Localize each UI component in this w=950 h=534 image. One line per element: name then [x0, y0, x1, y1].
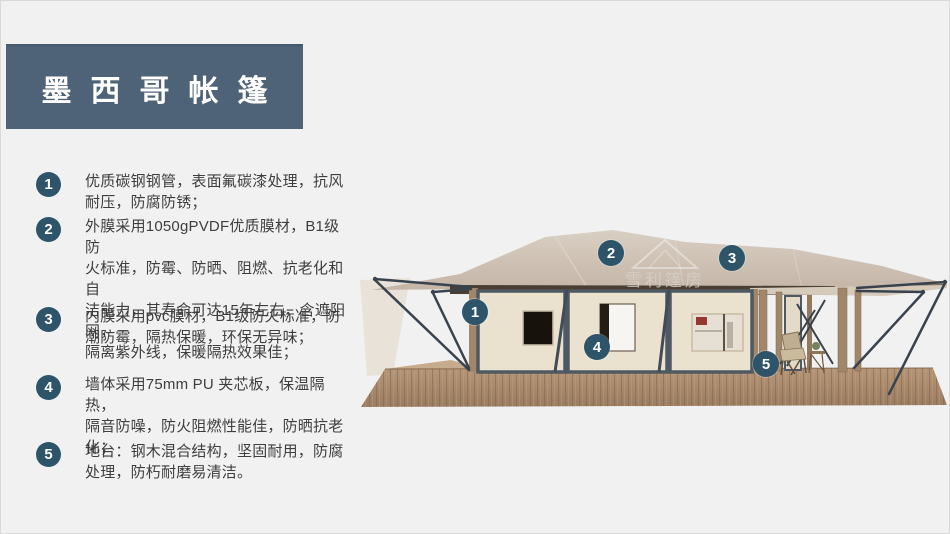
feature-text: 优质碳钢钢管，表面氟碳漆处理，抗风 耐压，防腐防锈； — [85, 171, 350, 213]
porch-post — [855, 290, 861, 371]
porch-post — [838, 288, 847, 372]
callout-3: 3 — [719, 245, 745, 271]
number-badge: 5 — [36, 442, 61, 467]
number-badge: 3 — [36, 307, 61, 332]
callout-5: 5 — [753, 351, 779, 377]
number-badge: 2 — [36, 217, 61, 242]
number-badge: 4 — [36, 375, 61, 400]
tent-render: 雪利篷房 XUELI TENT — [355, 218, 950, 423]
tent-illustration: 雪利篷房 XUELI TENT — [355, 218, 950, 423]
feature-text: 内膜采用pvc膜材，B1级防火标准，防 潮防霉，隔热保暖，环保无异味； — [85, 306, 350, 348]
feature-item-3: 3 内膜采用pvc膜材，B1级防火标准，防 潮防霉，隔热保暖，环保无异味； — [36, 306, 350, 348]
window-right — [692, 314, 743, 351]
feature-item-5: 5 地台：钢木混合结构，坚固耐用，防腐 处理，防朽耐磨易清洁。 — [36, 441, 350, 483]
number-badge: 1 — [36, 172, 61, 197]
page-title: 墨西哥帐篷 — [42, 66, 287, 110]
slide-page: 墨西哥帐篷 1 优质碳钢钢管，表面氟碳漆处理，抗风 耐压，防腐防锈； 2 外膜采… — [0, 0, 950, 534]
window-left — [523, 311, 553, 345]
wall-panels — [469, 288, 758, 372]
callout-2: 2 — [598, 240, 624, 266]
feature-text: 地台：钢木混合结构，坚固耐用，防腐 处理，防朽耐磨易清洁。 — [85, 441, 350, 483]
feature-item-1: 1 优质碳钢钢管，表面氟碳漆处理，抗风 耐压，防腐防锈； — [36, 171, 350, 213]
callout-1: 1 — [462, 299, 488, 325]
watermark-cn: 雪利篷房 — [625, 271, 705, 290]
title-banner: 墨西哥帐篷 — [6, 44, 303, 129]
roof-left-wing — [360, 278, 410, 376]
callout-4: 4 — [584, 334, 610, 360]
porch-post — [807, 295, 812, 370]
